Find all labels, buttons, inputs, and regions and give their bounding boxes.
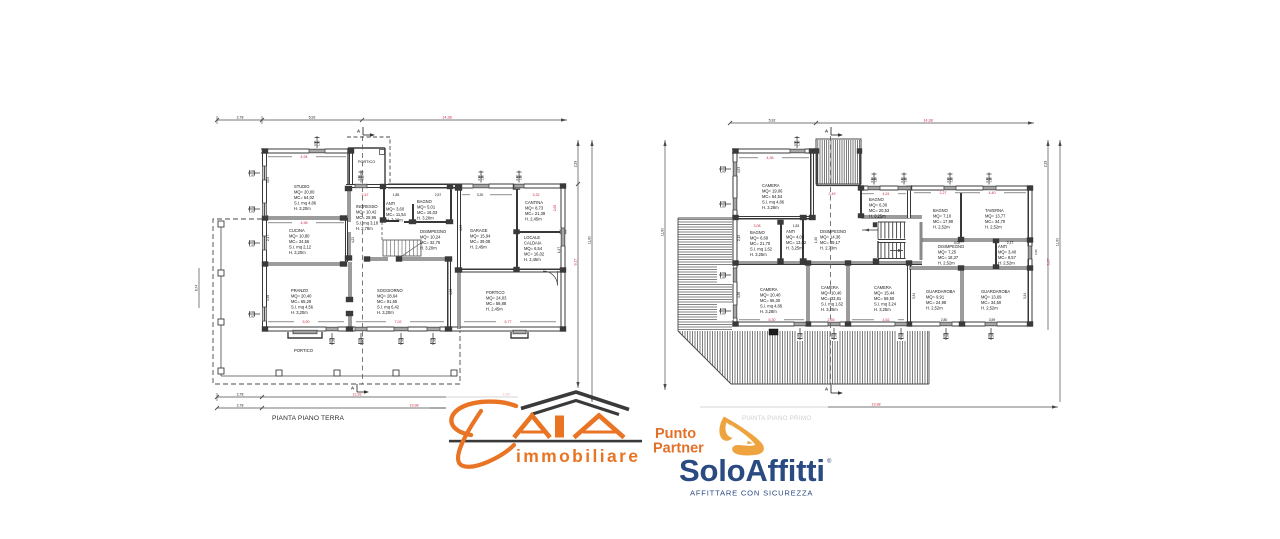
svg-text:1,80: 1,80 (720, 275, 726, 279)
svg-text:12,93: 12,93 (353, 393, 362, 397)
svg-text:3,30: 3,30 (477, 193, 484, 197)
svg-text:11,60: 11,60 (661, 228, 665, 236)
svg-text:1,80: 1,80 (720, 204, 726, 208)
svg-text:1,90: 1,90 (814, 237, 818, 243)
svg-text:0,90: 0,90 (897, 333, 901, 339)
svg-text:6,74: 6,74 (195, 285, 199, 291)
svg-text:11,60: 11,60 (1056, 238, 1060, 246)
svg-text:1,50: 1,50 (401, 338, 405, 344)
svg-text:2,17: 2,17 (266, 235, 270, 241)
svg-text:14,38: 14,38 (923, 119, 933, 123)
svg-text:0,90: 0,90 (357, 175, 361, 181)
svg-text:0,90: 0,90 (515, 175, 519, 181)
svg-text:2,78: 2,78 (237, 404, 244, 408)
svg-text:2,47: 2,47 (362, 193, 369, 197)
svg-text:2,19: 2,19 (737, 235, 741, 241)
svg-text:0,90: 0,90 (870, 177, 874, 183)
svg-text:3,34: 3,34 (912, 293, 916, 299)
svg-text:1,83: 1,83 (793, 224, 800, 228)
svg-text:1,50: 1,50 (904, 177, 908, 183)
svg-text:1,80: 1,80 (249, 209, 255, 213)
svg-text:4,98: 4,98 (301, 221, 308, 225)
svg-text:0,90: 0,90 (720, 200, 726, 204)
svg-text:0,90: 0,90 (720, 271, 726, 275)
svg-text:3,59: 3,59 (989, 318, 996, 322)
svg-text:1,50: 1,50 (989, 177, 993, 183)
svg-text:1,50: 1,50 (332, 338, 336, 344)
svg-text:5,77: 5,77 (505, 320, 512, 324)
svg-text:4,94: 4,94 (301, 155, 308, 159)
svg-text:1,50: 1,50 (901, 333, 905, 339)
svg-text:5,92: 5,92 (309, 116, 316, 120)
svg-text:1,50: 1,50 (519, 175, 523, 181)
svg-text:PORTICO: PORTICO (294, 348, 314, 353)
svg-text:A: A (825, 387, 828, 392)
svg-text:0,90: 0,90 (477, 175, 481, 181)
svg-text:2,55: 2,55 (828, 318, 835, 322)
svg-text:1,50: 1,50 (991, 333, 995, 339)
svg-text:1,50: 1,50 (481, 175, 485, 181)
svg-text:3,32: 3,32 (533, 193, 540, 197)
svg-text:0,90: 0,90 (720, 165, 726, 169)
svg-text:0,90: 0,90 (796, 333, 800, 339)
svg-text:1,80: 1,80 (720, 169, 726, 173)
svg-text:2,27: 2,27 (940, 191, 947, 195)
svg-text:14,38: 14,38 (442, 116, 452, 120)
svg-text:PIANTA PIANO TERRA: PIANTA PIANO TERRA (272, 415, 345, 422)
svg-text:PIANTA PIANO PRIMO: PIANTA PIANO PRIMO (742, 415, 811, 422)
svg-text:PORTICO: PORTICO (358, 160, 375, 164)
svg-text:2,57: 2,57 (435, 193, 442, 197)
svg-text:0,90: 0,90 (942, 333, 946, 339)
svg-text:SoloAffitti: SoloAffitti (679, 453, 825, 488)
svg-text:A: A (825, 129, 828, 134)
svg-text:2,65: 2,65 (553, 205, 557, 212)
svg-text:1,50: 1,50 (950, 177, 954, 183)
svg-text:0,90: 0,90 (249, 310, 255, 314)
svg-text:2,33: 2,33 (1044, 161, 1048, 168)
svg-text:9,27: 9,27 (574, 259, 578, 266)
svg-text:1,80: 1,80 (249, 314, 255, 318)
svg-text:0,90: 0,90 (987, 333, 991, 339)
svg-text:2,33: 2,33 (574, 161, 578, 168)
svg-text:1,50: 1,50 (433, 338, 437, 344)
svg-text:0,80: 0,80 (1034, 249, 1038, 255)
svg-text:4,36: 4,36 (737, 292, 741, 298)
svg-text:4,38: 4,38 (449, 289, 453, 295)
svg-text:9,27: 9,27 (1047, 259, 1051, 266)
svg-text:1,50: 1,50 (874, 177, 878, 183)
svg-text:19,98: 19,98 (872, 403, 881, 407)
svg-text:1,50: 1,50 (800, 333, 804, 339)
svg-text:0,90: 0,90 (900, 177, 904, 183)
svg-text:4,40: 4,40 (989, 191, 996, 195)
svg-text:7,05: 7,05 (503, 393, 510, 397)
svg-text:19,98: 19,98 (410, 404, 419, 408)
svg-text:0,90: 0,90 (720, 307, 726, 311)
svg-text:1,85: 1,85 (393, 193, 400, 197)
svg-text:0,90: 0,90 (249, 169, 255, 173)
svg-text:4,93: 4,93 (459, 225, 463, 231)
svg-text:0,90: 0,90 (249, 205, 255, 209)
svg-text:4,22: 4,22 (351, 237, 355, 243)
svg-text:1,50: 1,50 (834, 333, 838, 339)
svg-text:2,17: 2,17 (1007, 241, 1014, 245)
svg-text:0,90: 0,90 (793, 140, 797, 146)
svg-text:0,90: 0,90 (249, 239, 255, 243)
svg-text:0,90: 0,90 (313, 140, 317, 146)
svg-text:1,80: 1,80 (720, 311, 726, 315)
svg-text:1,50: 1,50 (317, 140, 321, 146)
svg-text:0,90: 0,90 (328, 338, 332, 344)
svg-text:0,90: 0,90 (397, 338, 401, 344)
svg-text:7,02: 7,02 (395, 320, 402, 324)
svg-text:5,90: 5,90 (303, 320, 310, 324)
svg-text:1,50: 1,50 (797, 140, 801, 146)
svg-text:4,51: 4,51 (883, 192, 890, 196)
svg-text:3,34: 3,34 (1023, 293, 1027, 299)
svg-text:11,60: 11,60 (588, 236, 592, 244)
svg-text:2,49: 2,49 (829, 192, 836, 196)
svg-text:0,90: 0,90 (357, 338, 361, 344)
svg-text:5,30: 5,30 (769, 318, 776, 322)
svg-text:A: A (357, 129, 360, 134)
svg-text:1,97: 1,97 (557, 247, 561, 253)
svg-text:2,78: 2,78 (237, 116, 244, 120)
svg-text:5,92: 5,92 (769, 119, 776, 123)
svg-text:0,90: 0,90 (429, 338, 433, 344)
svg-text:AFFITTARE CON SICUREZZA: AFFITTARE CON SICUREZZA (690, 489, 814, 498)
svg-text:4,05: 4,05 (266, 177, 270, 183)
svg-text:3,08: 3,08 (754, 224, 761, 228)
svg-text:A: A (351, 386, 354, 391)
svg-text:2,80: 2,80 (941, 318, 948, 322)
svg-text:4,36: 4,36 (767, 156, 774, 160)
svg-text:1,80: 1,80 (249, 243, 255, 247)
svg-text:0,90: 0,90 (985, 177, 989, 183)
svg-text:immobiliare: immobiliare (516, 446, 638, 466)
svg-text:1,80: 1,80 (249, 173, 255, 177)
svg-text:0,90: 0,90 (946, 177, 950, 183)
svg-text:2,78: 2,78 (237, 393, 244, 397)
svg-text:1,50: 1,50 (946, 333, 950, 339)
svg-text:4,52: 4,52 (883, 318, 890, 322)
svg-text:®: ® (827, 458, 832, 465)
svg-text:4,53: 4,53 (737, 167, 741, 173)
svg-text:4,38: 4,38 (266, 295, 270, 301)
